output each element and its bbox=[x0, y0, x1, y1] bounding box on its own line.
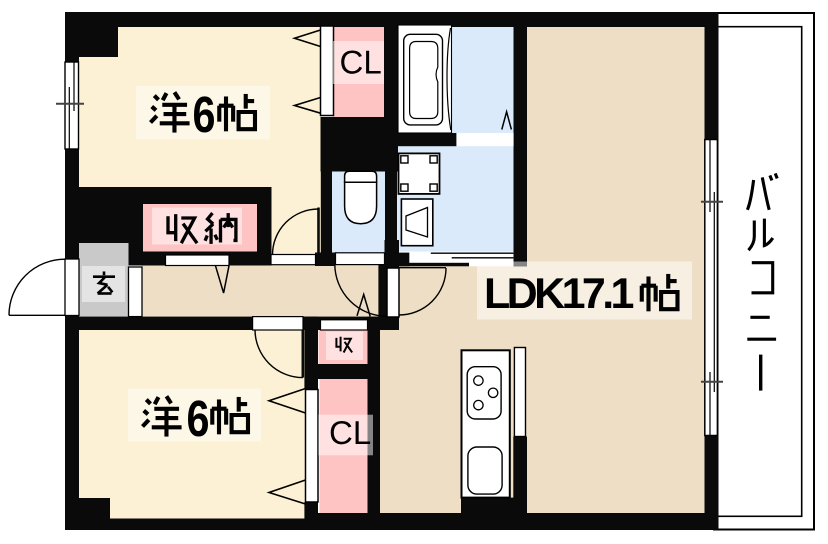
svg-text:CL: CL bbox=[329, 414, 371, 451]
svg-text:CL: CL bbox=[340, 44, 382, 81]
svg-text:6: 6 bbox=[193, 86, 216, 143]
svg-text:6: 6 bbox=[187, 390, 210, 447]
svg-text:LDK17.1: LDK17.1 bbox=[484, 270, 634, 318]
